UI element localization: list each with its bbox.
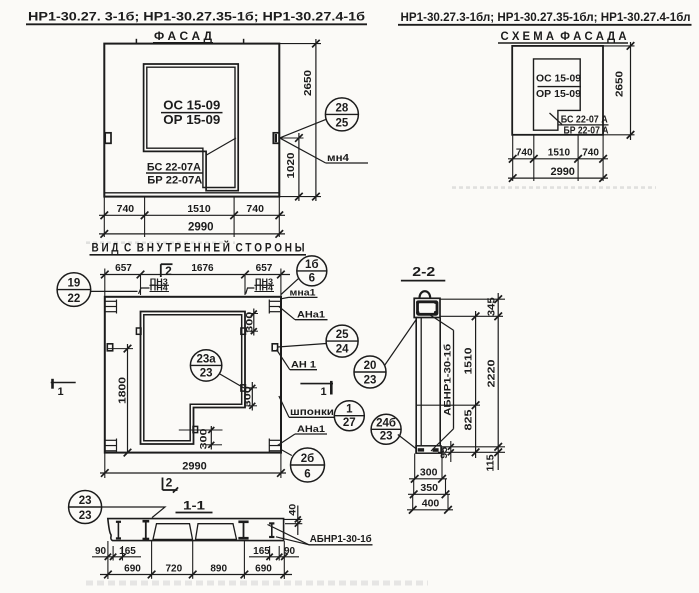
svg-text:657: 657: [256, 263, 273, 274]
svg-text:1676: 1676: [191, 263, 214, 274]
svg-text:720: 720: [165, 563, 182, 574]
svg-text:40: 40: [288, 504, 299, 516]
svg-text:300: 300: [243, 386, 254, 407]
svg-text:2: 2: [165, 264, 172, 278]
svg-text:2-2: 2-2: [412, 265, 435, 279]
svg-text:1510: 1510: [187, 203, 211, 215]
svg-text:23: 23: [79, 495, 92, 507]
svg-text:27: 27: [343, 417, 356, 429]
svg-text:23: 23: [200, 368, 213, 380]
svg-text:ОР 15-09: ОР 15-09: [163, 113, 220, 127]
svg-text:6: 6: [304, 468, 310, 480]
svg-text:2650: 2650: [614, 71, 626, 97]
svg-text:90: 90: [95, 546, 107, 557]
svg-text:24б: 24б: [376, 417, 396, 429]
svg-text:2220: 2220: [486, 359, 498, 387]
svg-text:6: 6: [309, 272, 315, 284]
svg-text:1: 1: [57, 386, 63, 398]
svg-text:165: 165: [253, 546, 270, 557]
svg-text:ОС 15-09: ОС 15-09: [163, 99, 220, 113]
svg-text:ОР 15-09: ОР 15-09: [536, 89, 581, 100]
svg-text:1-1: 1-1: [183, 501, 206, 513]
svg-text:19: 19: [68, 278, 81, 290]
svg-text:740: 740: [117, 203, 135, 215]
svg-text:АНа1: АНа1: [297, 424, 326, 435]
svg-text:300: 300: [244, 312, 255, 333]
svg-text:165: 165: [119, 546, 136, 557]
svg-text:300: 300: [420, 466, 438, 478]
svg-text:АН 1: АН 1: [291, 360, 317, 371]
svg-text:БС 22-07 А: БС 22-07 А: [561, 115, 608, 126]
svg-text:28: 28: [336, 102, 349, 114]
svg-text:АБНР1-30-1б: АБНР1-30-1б: [310, 533, 372, 545]
svg-text:1: 1: [320, 386, 326, 398]
svg-text:1800: 1800: [117, 377, 129, 404]
svg-text:НР1-30.27. 3-1б; НР1-30.27.35: НР1-30.27. 3-1б; НР1-30.27.35-1б; НР1-30…: [28, 10, 365, 24]
svg-text:825: 825: [463, 409, 475, 430]
svg-text:шпонки: шпонки: [290, 407, 334, 418]
svg-text:23: 23: [79, 510, 92, 522]
svg-text:23а: 23а: [197, 353, 217, 365]
svg-text:740: 740: [582, 147, 599, 158]
svg-text:Ф А С А Д: Ф А С А Д: [154, 29, 212, 43]
svg-text:690: 690: [124, 563, 141, 574]
svg-text:2650: 2650: [302, 70, 314, 96]
svg-text:740: 740: [516, 147, 533, 158]
svg-text:2990: 2990: [188, 222, 214, 234]
svg-text:1: 1: [346, 404, 353, 416]
svg-text:мн4: мн4: [327, 153, 350, 164]
svg-text:95: 95: [439, 447, 449, 459]
svg-text:300: 300: [199, 429, 210, 450]
svg-text:90: 90: [284, 546, 296, 557]
svg-text:400: 400: [422, 497, 440, 509]
svg-text:25: 25: [336, 117, 349, 129]
svg-text:1020: 1020: [285, 152, 297, 178]
svg-text:1510: 1510: [463, 347, 475, 374]
svg-text:БС 22-07А: БС 22-07А: [147, 162, 201, 174]
svg-text:С Х Е М А Ф А С А Д А: С Х Е М А Ф А С А Д А: [501, 29, 627, 43]
svg-text:АНа1: АНа1: [297, 310, 326, 321]
svg-text:В И Д С В Н У Т Р Е Н Н Е Й: В И Д С В Н У Т Р Е Н Н Е Й С Т О Р О Н …: [92, 242, 305, 255]
svg-text:690: 690: [255, 563, 272, 574]
svg-text:740: 740: [246, 203, 264, 215]
svg-text:24: 24: [336, 344, 349, 356]
svg-text:23: 23: [364, 374, 377, 386]
svg-text:2990: 2990: [550, 166, 574, 178]
svg-text:22: 22: [68, 293, 81, 305]
svg-text:1б: 1б: [305, 259, 319, 271]
svg-text:2990: 2990: [182, 461, 206, 473]
svg-text:БР 22-07 А: БР 22-07 А: [564, 125, 609, 136]
svg-text:2б: 2б: [301, 453, 315, 465]
svg-text:890: 890: [210, 563, 227, 574]
svg-text:345: 345: [486, 297, 498, 316]
svg-text:НР1-30.27.3-1бл; НР1-30.27.35-: НР1-30.27.3-1бл; НР1-30.27.35-1бл; НР1-3…: [401, 10, 691, 24]
svg-text:20: 20: [364, 360, 377, 372]
svg-text:657: 657: [115, 263, 132, 274]
svg-text:350: 350: [420, 482, 438, 494]
svg-text:23: 23: [380, 431, 393, 443]
svg-text:ОС 15-09: ОС 15-09: [536, 74, 581, 85]
svg-text:1510: 1510: [548, 147, 571, 158]
svg-text:БР 22-07А: БР 22-07А: [147, 174, 202, 186]
svg-text:25: 25: [336, 329, 349, 341]
svg-text:115: 115: [485, 454, 497, 471]
svg-text:2: 2: [166, 476, 173, 490]
